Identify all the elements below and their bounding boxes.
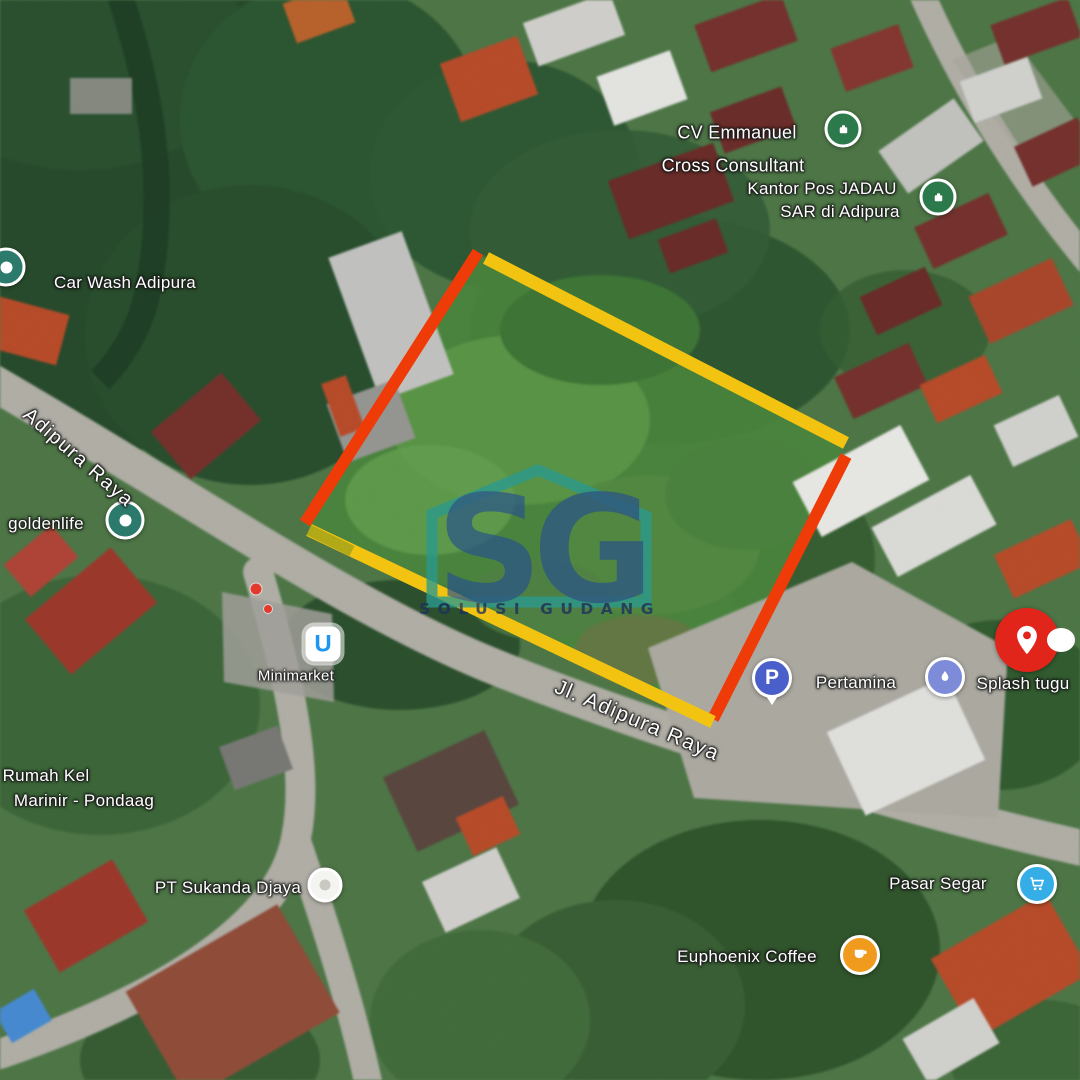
pertamina-pin-icon[interactable]: P	[752, 658, 792, 698]
small-red-dot-marker	[264, 605, 272, 613]
kantor-pos-pin-icon[interactable]	[920, 179, 957, 216]
pin-callout-tail	[1047, 628, 1075, 652]
label-cv-emmanuel-line1[interactable]: CV Emmanuel	[677, 123, 796, 144]
briefcase-icon	[929, 188, 947, 206]
label-kantor-pos-line1[interactable]: Kantor Pos JADAU	[747, 179, 896, 199]
small-red-dot-marker	[251, 584, 262, 595]
label-rumah-kel-line2[interactable]: Marinir - Pondaag	[14, 791, 154, 811]
pt-sukanda-pin-icon[interactable]	[308, 868, 343, 903]
satellite-map[interactable]: Car Wash Adipura CV Emmanuel Cross Consu…	[0, 0, 1080, 1080]
label-kantor-pos-line2[interactable]: SAR di Adipura	[780, 202, 900, 222]
label-goldenlife[interactable]: goldenlife	[8, 514, 84, 534]
cv-emmanuel-pin-icon[interactable]	[825, 111, 862, 148]
minimarket-logo-letter: U	[314, 630, 331, 658]
coffee-cup-icon	[851, 946, 869, 964]
briefcase-icon	[834, 120, 852, 138]
label-euphoenix-coffee[interactable]: Euphoenix Coffee	[677, 947, 817, 967]
label-pt-sukanda-djaya[interactable]: PT Sukanda Djaya	[155, 878, 301, 898]
parking-p-glyph: P	[765, 666, 779, 690]
shopping-cart-icon	[1028, 875, 1047, 894]
map-pin-icon	[1010, 623, 1044, 657]
splash-tugu-pin-icon[interactable]	[925, 657, 965, 697]
boundary-bottom-yellow-line	[309, 530, 713, 722]
pasar-segar-pin-icon[interactable]	[1017, 864, 1057, 904]
plot-boundary-overlay	[0, 0, 1080, 1080]
label-splash-tugu[interactable]: Splash tugu	[976, 674, 1069, 694]
boundary-top-yellow-line	[486, 258, 846, 443]
label-pertamina[interactable]: Pertamina	[816, 673, 896, 693]
pin-tail	[766, 696, 778, 705]
highlighted-location-pin[interactable]	[995, 608, 1059, 672]
minimarket-pin-icon[interactable]: U	[306, 627, 341, 662]
label-minimarket[interactable]: Minimarket	[258, 668, 334, 685]
label-cv-emmanuel-line2[interactable]: Cross Consultant	[662, 156, 805, 177]
label-rumah-kel-line1[interactable]: Rumah Kel	[3, 766, 90, 786]
label-car-wash-adipura[interactable]: Car Wash Adipura	[54, 273, 196, 293]
label-pasar-segar[interactable]: Pasar Segar	[889, 874, 987, 894]
boundary-left-red-line	[305, 252, 478, 523]
water-drop-icon	[936, 668, 954, 686]
euphoenix-coffee-pin-icon[interactable]	[840, 935, 880, 975]
